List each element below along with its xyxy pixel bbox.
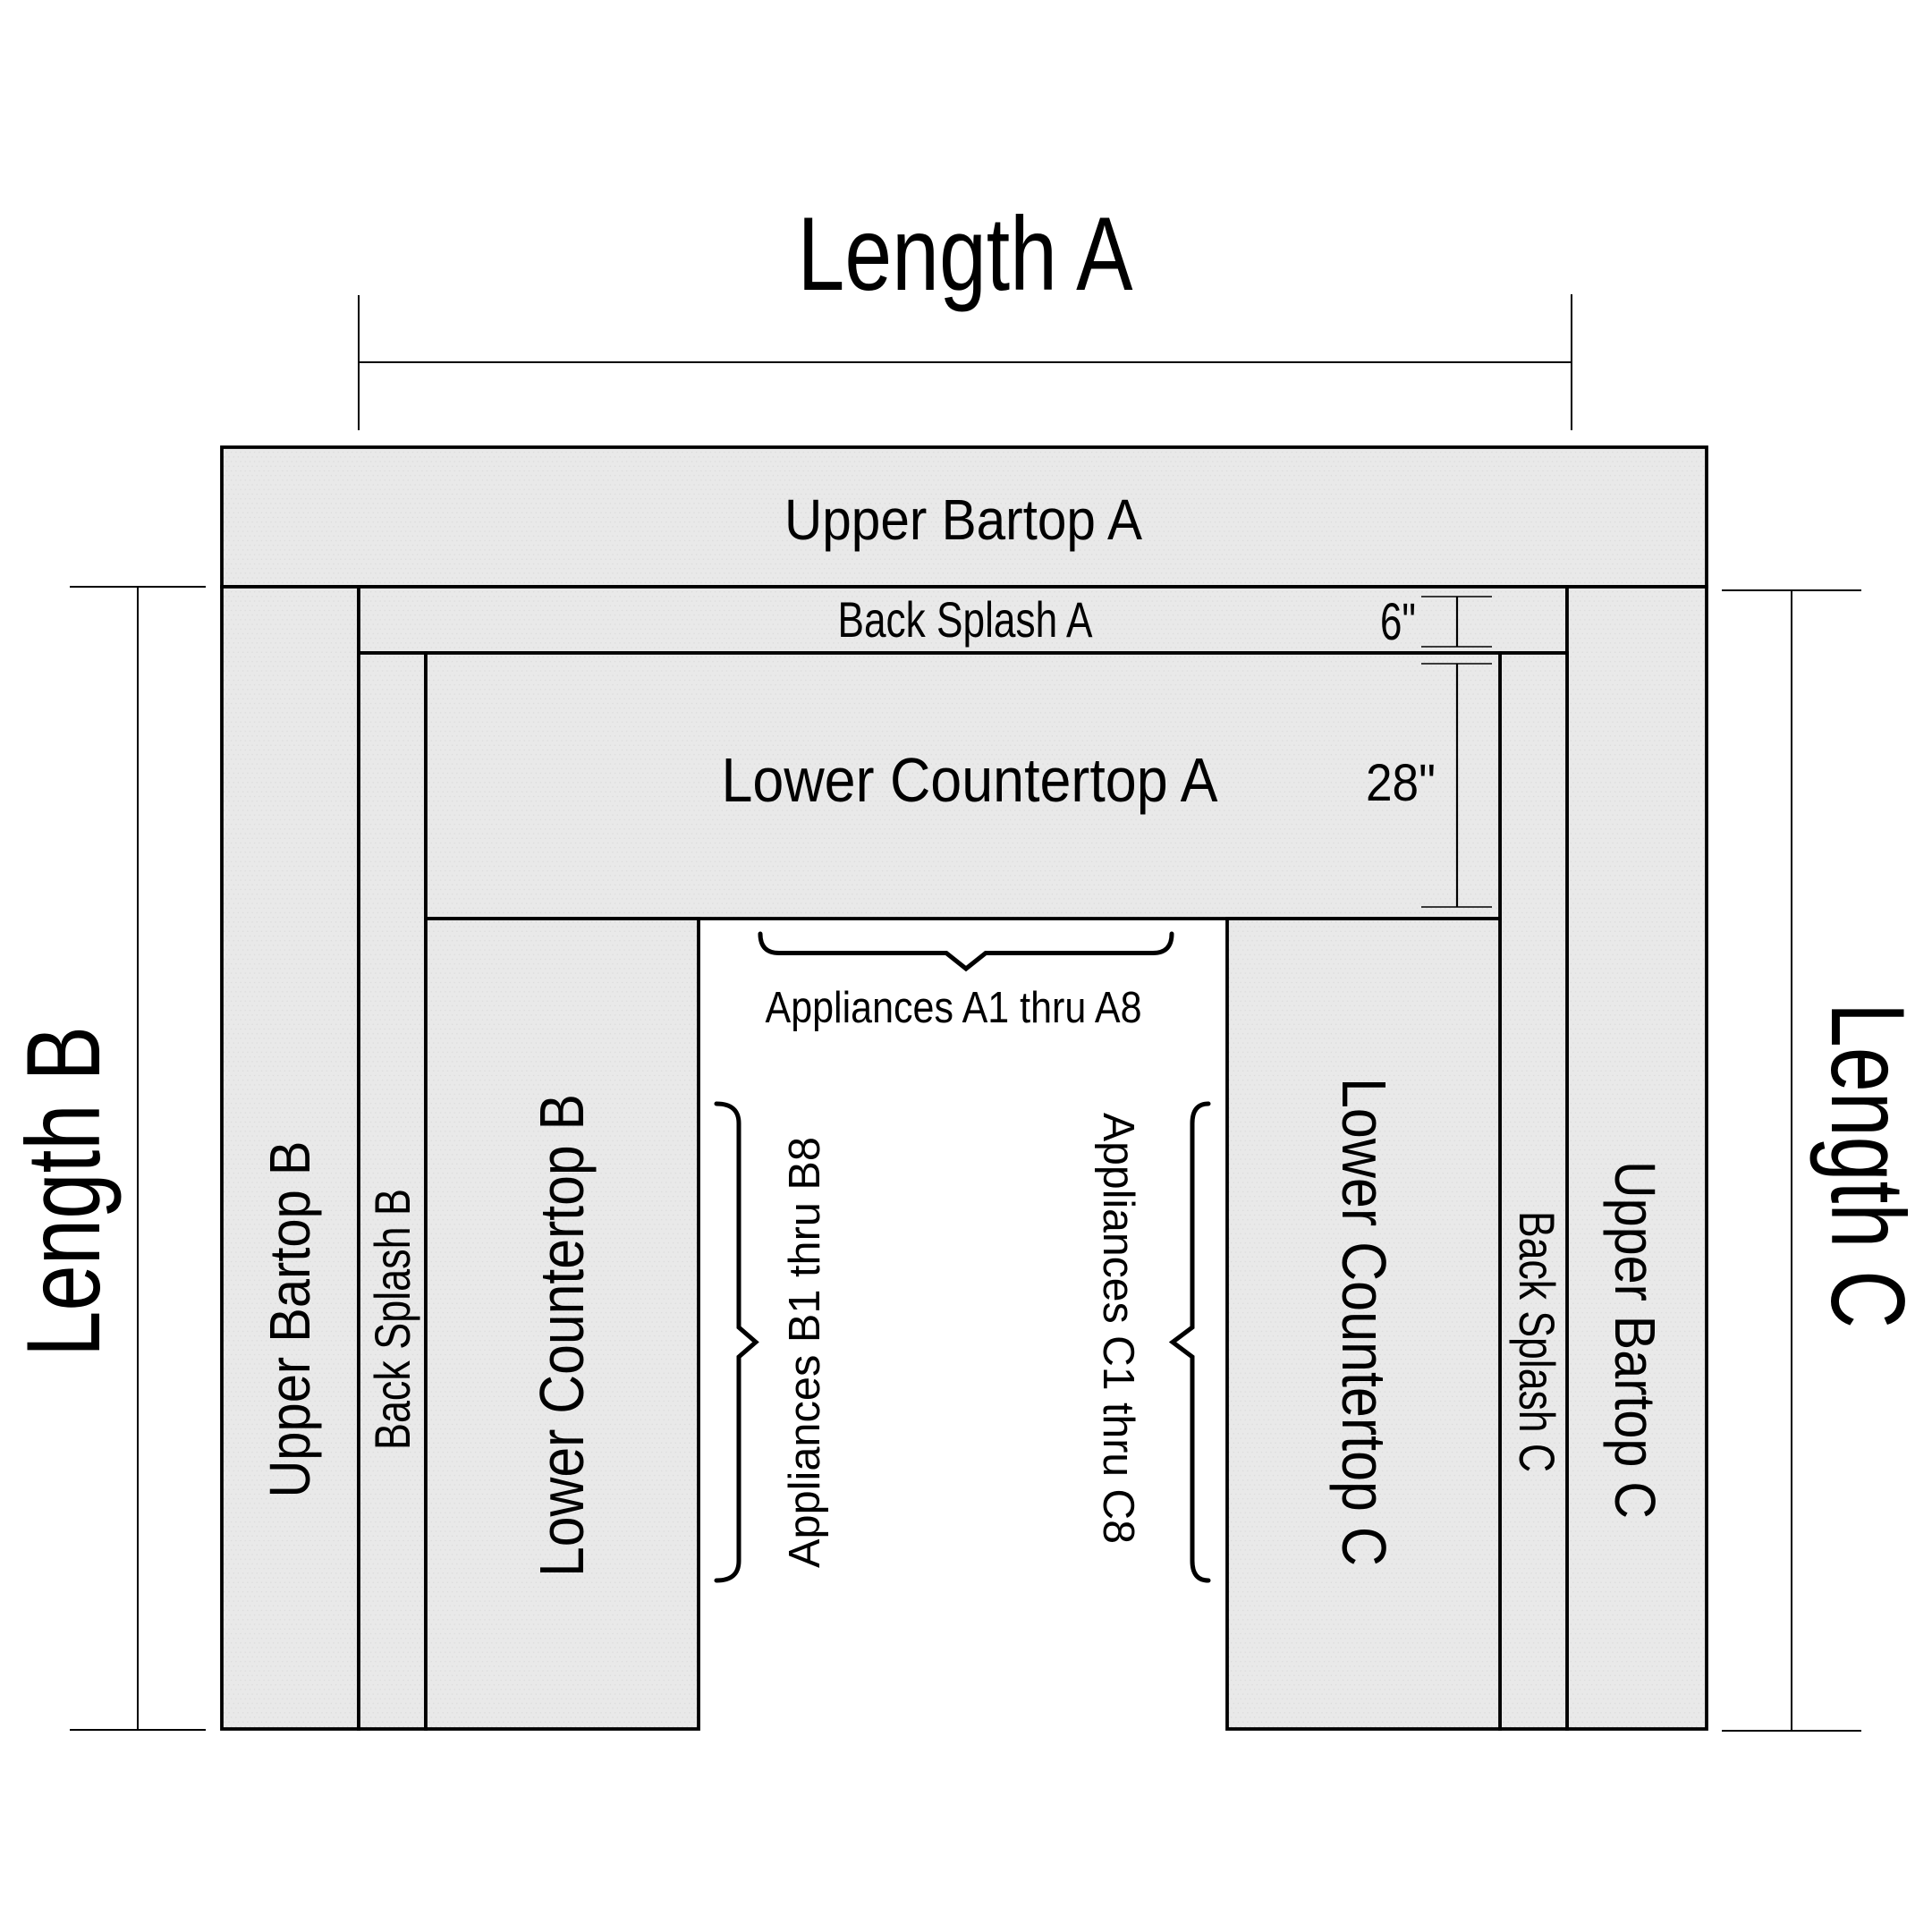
svg-text:Lower Countertop B: Lower Countertop B: [527, 1094, 597, 1577]
svg-text:Lower Countertop C: Lower Countertop C: [1329, 1078, 1399, 1566]
svg-text:Upper Bartop C: Upper Bartop C: [1603, 1161, 1667, 1519]
svg-text:Length B: Length B: [4, 1026, 122, 1357]
svg-text:Appliances A1 thru A8: Appliances A1 thru A8: [766, 984, 1142, 1032]
svg-text:Upper Bartop B: Upper Bartop B: [258, 1141, 322, 1498]
svg-text:28": 28": [1366, 754, 1436, 812]
svg-text:Upper Bartop A: Upper Bartop A: [784, 487, 1142, 552]
svg-text:Appliances B1 thru B8: Appliances B1 thru B8: [781, 1137, 829, 1568]
svg-text:Length C: Length C: [1809, 1003, 1927, 1328]
svg-text:Back Splash A: Back Splash A: [838, 591, 1094, 648]
svg-text:Appliances C1 thru C8: Appliances C1 thru C8: [1094, 1113, 1142, 1544]
svg-text:Length A: Length A: [798, 195, 1133, 312]
svg-text:Lower Countertop A: Lower Countertop A: [722, 745, 1218, 815]
svg-text:6": 6": [1380, 593, 1416, 651]
svg-text:Back Splash C: Back Splash C: [1509, 1211, 1565, 1472]
svg-text:Back Splash B: Back Splash B: [364, 1189, 420, 1450]
